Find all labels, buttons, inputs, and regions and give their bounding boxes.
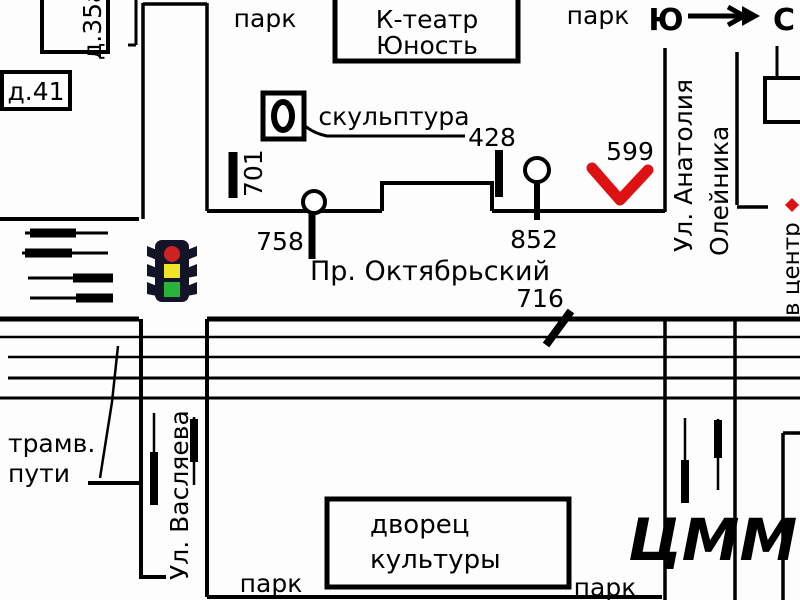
route-number-852: 852 [510, 225, 558, 254]
house-35a-label: д.35а [78, 0, 107, 60]
tram-tracks-label-line1: трамв. [8, 429, 95, 458]
city-map: ЦММ [0, 0, 800, 600]
red-dot-to-center [785, 198, 799, 212]
red-checkmark-599 [592, 168, 648, 200]
theater-name-line1: К-театр [376, 5, 478, 34]
compass-north-label: С [773, 3, 795, 38]
street-oleinika-label-line1: Ул. Анатолия [669, 79, 698, 252]
palace-label-line1: дворец [370, 510, 469, 540]
tram-platform-marks-oleinika [685, 418, 718, 503]
street-vaslyaeva-label: Ул. Васляева [165, 410, 194, 580]
sculpture-icon [274, 102, 292, 130]
watermark-text: ЦММ [628, 506, 797, 574]
tram-tracks-label-line2: пути [8, 459, 70, 488]
traffic-light-red [164, 246, 180, 262]
park-bottom-left-label: парк [240, 569, 303, 598]
route-number-758: 758 [256, 227, 304, 256]
traffic-light-yellow [164, 264, 180, 278]
route-number-701: 701 [239, 149, 268, 197]
park-top-left-label: парк [234, 4, 297, 33]
sculpture-label: скульптура [318, 102, 469, 131]
street-oktyabrsky-label: Пр. Октябрьский [310, 256, 550, 287]
park-top-right-label: парк [567, 1, 630, 30]
tram-platform-marks-left [22, 233, 113, 298]
route-number-428: 428 [468, 123, 516, 152]
street-oleinika-label-line2: Олейника [705, 126, 734, 256]
compass-south-label: Ю [648, 3, 683, 38]
traffic-light-icon [147, 240, 197, 302]
to-center-label: в центр [779, 222, 800, 316]
park-bottom-right-label: парк [574, 573, 637, 600]
traffic-light-green [164, 282, 180, 297]
building-428-outline [382, 183, 492, 211]
map-canvas: ЦММ [0, 0, 800, 600]
house-41-label: д.41 [7, 77, 64, 106]
compass-arrow-icon [688, 6, 760, 26]
route-number-716: 716 [516, 284, 564, 313]
theater-name-line2: Юность [376, 31, 478, 60]
route-number-599: 599 [606, 137, 654, 166]
palace-label-line2: культуры [370, 545, 501, 575]
building-top-right-outline [765, 78, 800, 122]
